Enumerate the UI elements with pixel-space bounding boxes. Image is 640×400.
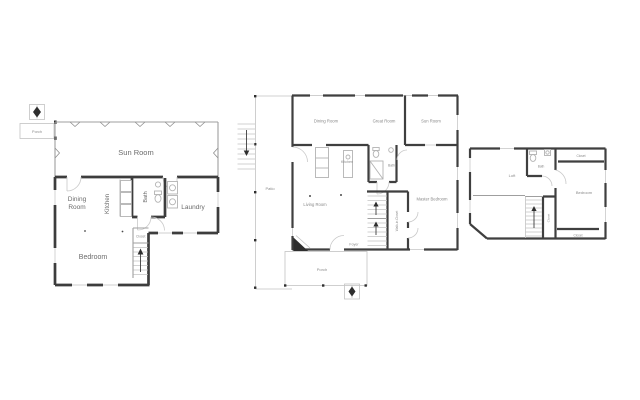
room-label-foyer: Foyer [349, 243, 359, 247]
room-label-sun-room: Sun Room [421, 119, 441, 124]
room-label-master-bedroom: Master Bedroom [417, 197, 448, 202]
patio-deck [254, 95, 292, 289]
bath-walls [132, 178, 165, 231]
deck-stairs-icon [238, 124, 256, 169]
room-label-patio: Patio [265, 186, 275, 191]
bathroom-fixtures [530, 150, 551, 162]
room-label-living-room: Living Room [303, 202, 327, 207]
sink-icon [389, 148, 394, 153]
floorplan-canvas: Porch Sun Room [0, 0, 640, 400]
toilet-icon [373, 148, 379, 151]
kitchen-counter-icon [120, 180, 132, 217]
floorplan-sheet: Porch Sun Room [0, 0, 640, 400]
stairs-icon [368, 196, 388, 246]
room-label-kitchen: Kitchen [105, 194, 111, 214]
room-label-bath: Bath [538, 165, 545, 169]
room-label-bath: Bath [388, 164, 395, 168]
exterior-walls [55, 177, 218, 285]
room-label-great-room: Great Room [373, 119, 396, 124]
room-label-dining-1: Dining [68, 196, 87, 203]
room-label-closet-top: Closet [576, 154, 585, 158]
washer-dryer-icon [168, 182, 178, 209]
room-label-bedroom: Bedroom [79, 254, 108, 261]
floor-plan-middle: Patio [238, 95, 459, 299]
room-label-closet-middle: Closet [547, 214, 551, 223]
stairs-icon [526, 197, 543, 239]
room-label-bath: Bath [143, 191, 149, 202]
floor-plan-right: Loft Bath Closet Bedroom Closet Closet [470, 149, 606, 240]
toilet-icon [530, 151, 537, 155]
room-label-sun-room: Sun Room [118, 148, 153, 157]
room-label-bedroom: Bedroom [576, 190, 593, 195]
room-label-walk-in-closet: Walk-in Closet [395, 211, 399, 232]
room-label-closet-bottom: Closet [573, 234, 582, 238]
sink-icon [155, 182, 160, 187]
room-label-porch: Porch [317, 267, 327, 272]
north-arrow-icon [30, 105, 45, 120]
north-arrow-icon [345, 284, 360, 299]
room-label-dining-2: Room [68, 204, 85, 211]
room-label-laundry: Laundry [181, 204, 205, 211]
room-label-dining-room: Dining Room [314, 119, 339, 124]
toilet-icon [155, 191, 162, 202]
room-label-porch: Porch [32, 130, 42, 134]
floor-plan-left: Porch Sun Room [20, 105, 218, 286]
room-label-kitchen: Kitchen [341, 160, 353, 164]
room-label-loft: Loft [509, 173, 517, 178]
room-label-closet: Closet [136, 235, 145, 239]
sink-icon [346, 155, 350, 159]
